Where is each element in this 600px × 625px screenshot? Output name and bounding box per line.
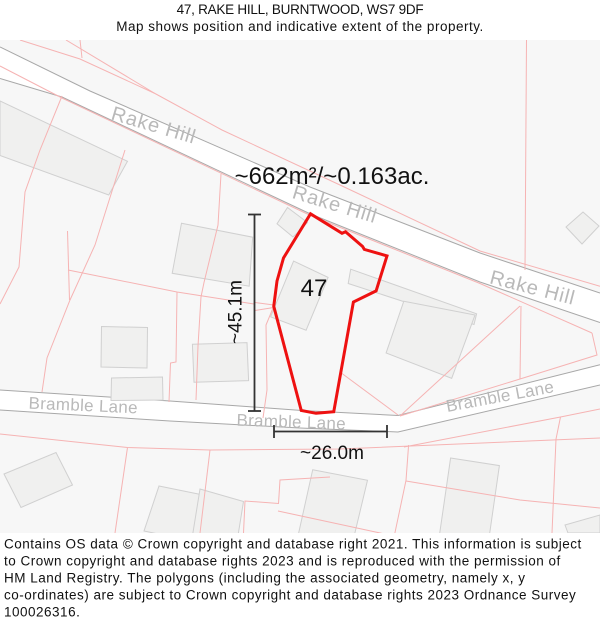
svg-text:Bramble Lane: Bramble Lane <box>236 411 346 434</box>
svg-text:Contains OS data © Crown copyr: Contains OS data © Crown copyright and d… <box>4 537 582 552</box>
svg-text:47, RAKE HILL, BURNTWOOD, WS7: 47, RAKE HILL, BURNTWOOD, WS7 9DF <box>177 2 424 17</box>
svg-text:~45.1m: ~45.1m <box>226 280 247 344</box>
svg-text:co-ordinates) are subject to C: co-ordinates) are subject to Crown copyr… <box>4 588 576 603</box>
svg-text:to Crown copyright and databas: to Crown copyright and database rights 2… <box>4 554 561 569</box>
svg-text:HM Land Registry. The polygons: HM Land Registry. The polygons (includin… <box>4 571 526 586</box>
svg-text:Map shows position and indicat: Map shows position and indicative extent… <box>116 19 483 34</box>
svg-text:~662m²/~0.163ac.: ~662m²/~0.163ac. <box>235 163 430 190</box>
svg-text:~26.0m: ~26.0m <box>300 443 364 464</box>
svg-text:47: 47 <box>301 275 328 302</box>
svg-text:100026316.: 100026316. <box>4 605 80 620</box>
